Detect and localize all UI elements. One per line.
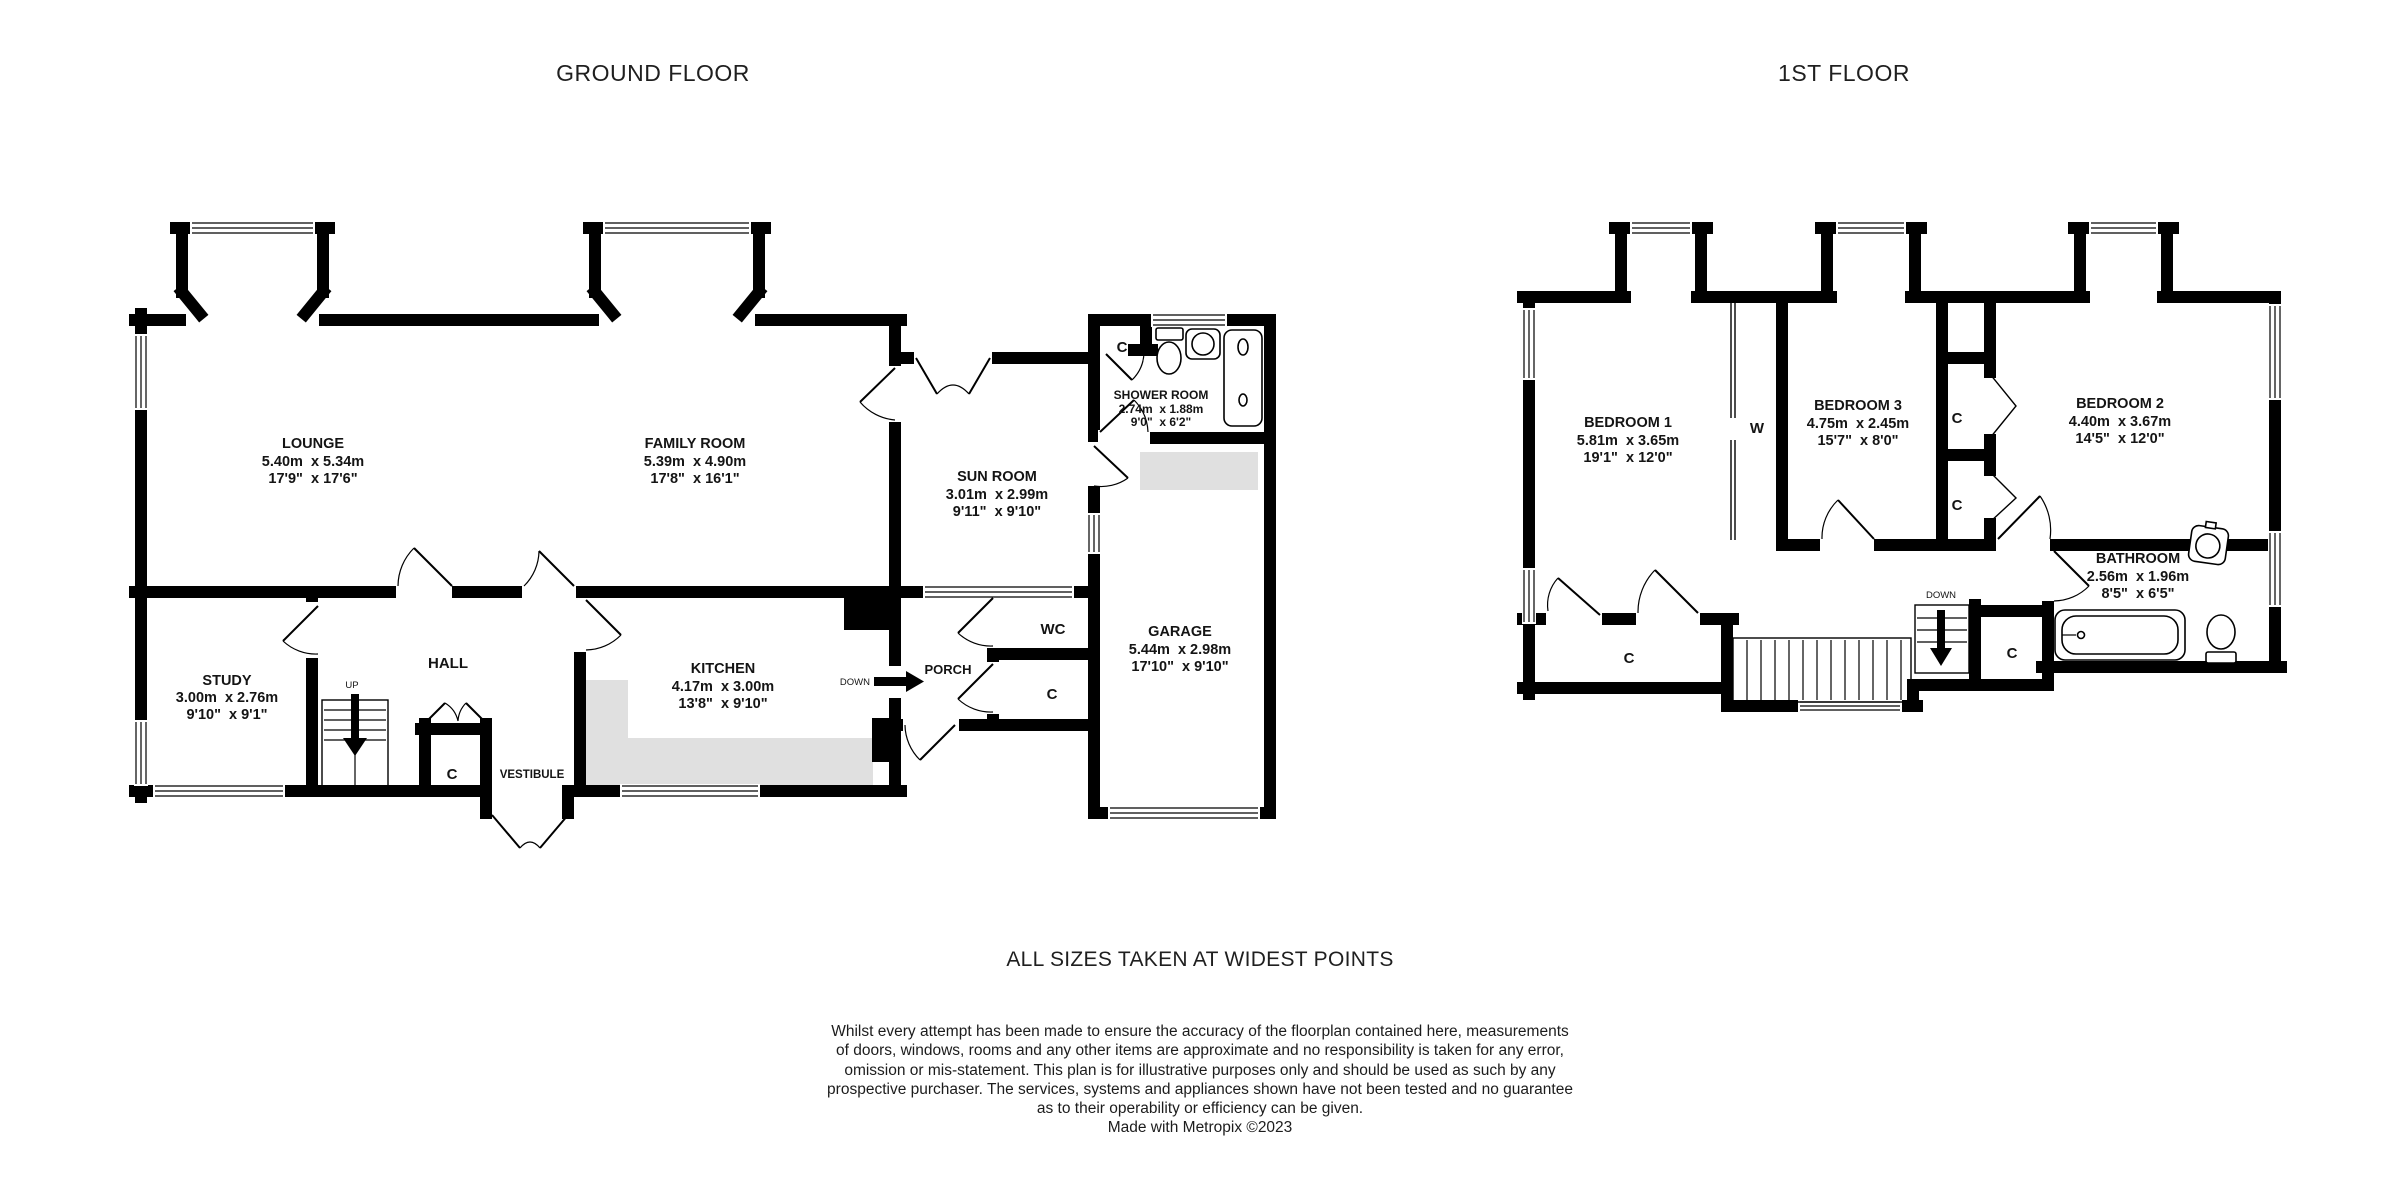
sun-room-imperial: 9'11" x 9'10"	[953, 504, 1041, 520]
kitchen-metric: 4.17m x 3.00m	[672, 679, 774, 695]
ground-floor-shading	[586, 452, 1258, 785]
porch-label: PORCH	[925, 662, 972, 677]
bedroom1-name: BEDROOM 1	[1584, 415, 1672, 431]
sun-room-metric: 3.01m x 2.99m	[946, 487, 1048, 503]
bedroom1-metric: 5.81m x 3.65m	[1577, 433, 1679, 449]
floorplan-canvas: LOUNGE 5.40m x 5.34m 17'9" x 17'6" FAMIL…	[0, 0, 2400, 1199]
sun-room-name: SUN ROOM	[957, 469, 1037, 485]
disclaimer: Whilst every attempt has been made to en…	[0, 1022, 2400, 1138]
closet-stairs-label: C	[2007, 645, 2018, 662]
closet-mid-label: C	[1952, 497, 1963, 514]
wardrobe-front	[1731, 303, 1735, 540]
lounge-metric: 5.40m x 5.34m	[262, 454, 364, 470]
study-imperial: 9'10" x 9'1"	[186, 707, 267, 723]
bedroom2-imperial: 14'5" x 12'0"	[2075, 431, 2164, 447]
wardrobe-label: W	[1750, 420, 1765, 437]
shower-room-metric: 2.74m x 1.88m	[1119, 402, 1204, 416]
disclaimer-line: Made with Metropix ©2023	[0, 1118, 2400, 1137]
shower-closet-label: C	[1117, 339, 1128, 356]
disclaimer-line: Whilst every attempt has been made to en…	[0, 1022, 2400, 1041]
down-arrow	[1937, 610, 1945, 650]
sink-icon	[2188, 520, 2230, 566]
bedroom3-imperial: 15'7" x 8'0"	[1817, 433, 1898, 449]
bedroom2-name: BEDROOM 2	[2076, 396, 2164, 412]
disclaimer-line: as to their operability or efficiency ca…	[0, 1099, 2400, 1118]
family-room-imperial: 17'8" x 16'1"	[650, 471, 739, 487]
down-label: DOWN	[840, 677, 870, 688]
disclaimer-line: of doors, windows, rooms and any other i…	[0, 1041, 2400, 1060]
down-label: DOWN	[1926, 590, 1956, 601]
disclaimer-line: omission or mis-statement. This plan is …	[0, 1061, 2400, 1080]
shower-room-imperial: 9'0" x 6'2"	[1131, 415, 1191, 429]
shower-room-name: SHOWER ROOM	[1114, 388, 1209, 402]
bedroom1-imperial: 19'1" x 12'0"	[1583, 450, 1672, 466]
bedroom3-name: BEDROOM 3	[1814, 398, 1902, 414]
garage-metric: 5.44m x 2.98m	[1129, 642, 1231, 658]
hall-closet-label: C	[447, 766, 458, 783]
ground-floor-plan: LOUNGE 5.40m x 5.34m 17'9" x 17'6" FAMIL…	[134, 221, 1270, 848]
closet-top-label: C	[1952, 410, 1963, 427]
first-floor-doors	[1548, 496, 2089, 615]
ground-floor-labels: LOUNGE 5.40m x 5.34m 17'9" x 17'6" FAMIL…	[176, 339, 1231, 783]
down-arrow	[874, 677, 906, 686]
lounge-imperial: 17'9" x 17'6"	[268, 471, 357, 487]
floorplan-page: GROUND FLOOR 1ST FLOOR	[0, 0, 2400, 1199]
bathroom-metric: 2.56m x 1.96m	[2087, 569, 2189, 585]
up-arrow	[351, 694, 359, 740]
study-metric: 3.00m x 2.76m	[176, 690, 278, 706]
vestibule-label: VESTIBULE	[500, 769, 565, 781]
bathroom-imperial: 8'5" x 6'5"	[2101, 586, 2174, 602]
disclaimer-line: prospective purchaser. The services, sys…	[0, 1080, 2400, 1099]
porch-closet-label: C	[1047, 686, 1058, 703]
first-floor-plan: BEDROOM 1 5.81m x 3.65m 19'1" x 12'0" BE…	[1522, 221, 2282, 712]
family-room-metric: 5.39m x 4.90m	[644, 454, 746, 470]
wc-label: WC	[1041, 621, 1066, 638]
sizes-note: ALL SIZES TAKEN AT WIDEST POINTS	[0, 948, 2400, 972]
hall-label: HALL	[428, 655, 468, 672]
kitchen-imperial: 13'8" x 9'10"	[678, 696, 767, 712]
bathroom-name: BATHROOM	[2096, 551, 2180, 567]
up-label: UP	[345, 680, 358, 691]
ground-floor-stairs	[322, 694, 388, 792]
closet-eaves-label: C	[1624, 650, 1635, 667]
study-name: STUDY	[202, 673, 251, 689]
garage-imperial: 17'10" x 9'10"	[1131, 659, 1228, 675]
lounge-name: LOUNGE	[282, 436, 344, 452]
toilet-icon	[1156, 328, 1183, 340]
bedroom2-metric: 4.40m x 3.67m	[2069, 414, 2171, 430]
toilet-icon	[2207, 615, 2235, 649]
kitchen-name: KITCHEN	[691, 661, 755, 677]
family-room-name: FAMILY ROOM	[645, 436, 746, 452]
bedroom3-metric: 4.75m x 2.45m	[1807, 416, 1909, 432]
garage-name: GARAGE	[1148, 624, 1212, 640]
